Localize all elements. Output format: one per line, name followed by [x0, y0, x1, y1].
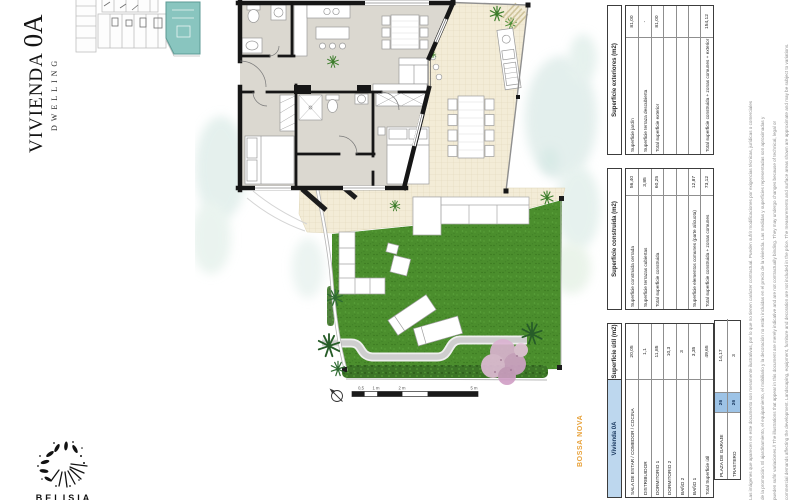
table-superficie-exteriores: Superficie exteriores (m2) Superficie ja… [607, 5, 714, 155]
developer-logo: BELISIA [26, 436, 102, 500]
construida-value: 60,25 [651, 169, 663, 196]
room-label: DORMITORIO 1 [651, 380, 663, 497]
util-header: Superficie útil (m2) [608, 324, 621, 380]
exteriores-label [663, 38, 675, 154]
title-unit-number: 0A [18, 14, 48, 47]
scale-bar: 0,5 1 m 2 m 5 m [352, 386, 478, 397]
room-label: BAÑO 2 [676, 380, 688, 497]
north-arrow-icon [330, 389, 343, 402]
room-label: DISTRIBUIDOR [638, 380, 650, 497]
scale-label: 0,5 [358, 386, 364, 391]
exteriores-value [688, 6, 700, 38]
construida-value: 3,85 [638, 169, 650, 196]
exteriores-header: Superficie exteriores (m2) [608, 6, 621, 154]
disclaimer-line: commercial demands affecting the develop… [781, 10, 793, 500]
construida-value: 56,40 [626, 169, 638, 196]
construida-label: Superficie elementos comunes (parte alíc… [688, 196, 700, 309]
page-title: VIVIENDA 0A DWELLING [18, 3, 59, 153]
room-area: 11,85 [651, 324, 663, 380]
table-superficie-construida: Superficie construida (m2) Superficie co… [607, 168, 714, 310]
room-label: BAÑO 1 [688, 380, 700, 497]
floor-plan: 0,5 1 m 2 m 5 m [195, 0, 615, 410]
exteriores-label: Total superficie exterior [651, 38, 663, 154]
table-garage: PLAZA DE GARAJE 26 14,17 TRASTERO 26 3 [714, 320, 741, 480]
construida-label [663, 196, 675, 309]
surface-tables: Vivienda 0A Superficie útil (m2) SALA DE… [600, 0, 740, 500]
construida-label [676, 196, 688, 309]
exteriores-label [688, 38, 700, 154]
garage-area: 14,17 [715, 319, 727, 393]
table-superficie-util: Vivienda 0A Superficie útil (m2) SALA DE… [607, 323, 714, 498]
disclaimer-line: de la promoción. El ajardinamiento, el e… [757, 10, 769, 500]
construida-value: 12,87 [688, 169, 700, 196]
room-label: DORMITORIO 2 [663, 380, 675, 497]
garage-area: 3 [727, 319, 739, 393]
exteriores-value [676, 6, 688, 38]
construida-value [663, 169, 675, 196]
construida-label: Total superficie construida [651, 196, 663, 309]
exteriores-label: Superficie terraza descubierta [638, 38, 650, 154]
project-name: BOSSA NOVA [577, 415, 584, 467]
exteriores-label: Total superficie construida + zonas comu… [700, 38, 712, 154]
room-label: SALA DE ESTAR / COMEDOR / COCINA [626, 380, 638, 497]
exteriores-value [663, 6, 675, 38]
garage-number: 26 [727, 393, 739, 413]
site-key-plan [62, 0, 208, 64]
exteriores-value: 81,00 [626, 6, 638, 38]
unit-header: Vivienda 0A [608, 380, 621, 497]
room-area: 3 [676, 324, 688, 380]
disclaimer-line: pueden sufrir variaciones.// The illustr… [769, 10, 781, 500]
room-area: 20,05 [626, 324, 638, 380]
scale-label: 5 m [471, 386, 478, 391]
legal-disclaimer: Las imágenes que aparecen en este docume… [745, 10, 795, 500]
garage-label: PLAZA DE GARAJE [715, 413, 727, 479]
room-label: Total Superficie útil [700, 380, 712, 497]
construida-label: Total superficie construida + zonas comu… [700, 196, 712, 309]
brochure-sheet: VIVIENDA 0A DWELLING [0, 0, 800, 500]
room-area: 10,3 [663, 324, 675, 380]
construida-label: Superficie construida cerrada [626, 196, 638, 309]
title-line: VIVIENDA 0A [18, 3, 49, 153]
garage-number: 26 [715, 393, 727, 413]
title-vivienda: VIVIENDA [26, 53, 47, 153]
garage-label: TRASTERO [727, 413, 739, 479]
scale-label: 2 m [399, 386, 406, 391]
exteriores-label: Superficie jardín [626, 38, 638, 154]
construida-header: Superficie construida (m2) [608, 169, 621, 309]
exteriores-label [676, 38, 688, 154]
construida-value [676, 169, 688, 196]
title-dwelling: DWELLING [50, 3, 59, 131]
exteriores-value: - [638, 6, 650, 38]
exteriores-value: 154,12 [700, 6, 712, 38]
room-area: 1,1 [638, 324, 650, 380]
logo-emblem-icon [26, 436, 102, 494]
room-area: 49,65 [700, 324, 712, 380]
construida-value: 73,12 [700, 169, 712, 196]
scale-label: 1 m [373, 386, 380, 391]
exteriores-value: 81,00 [651, 6, 663, 38]
logo-wordmark: BELISIA [26, 493, 102, 500]
construida-label: Superficie terrazas cubiertas [638, 196, 650, 309]
room-area: 3,35 [688, 324, 700, 380]
disclaimer-line: Las imágenes que aparecen en este docume… [745, 10, 757, 500]
